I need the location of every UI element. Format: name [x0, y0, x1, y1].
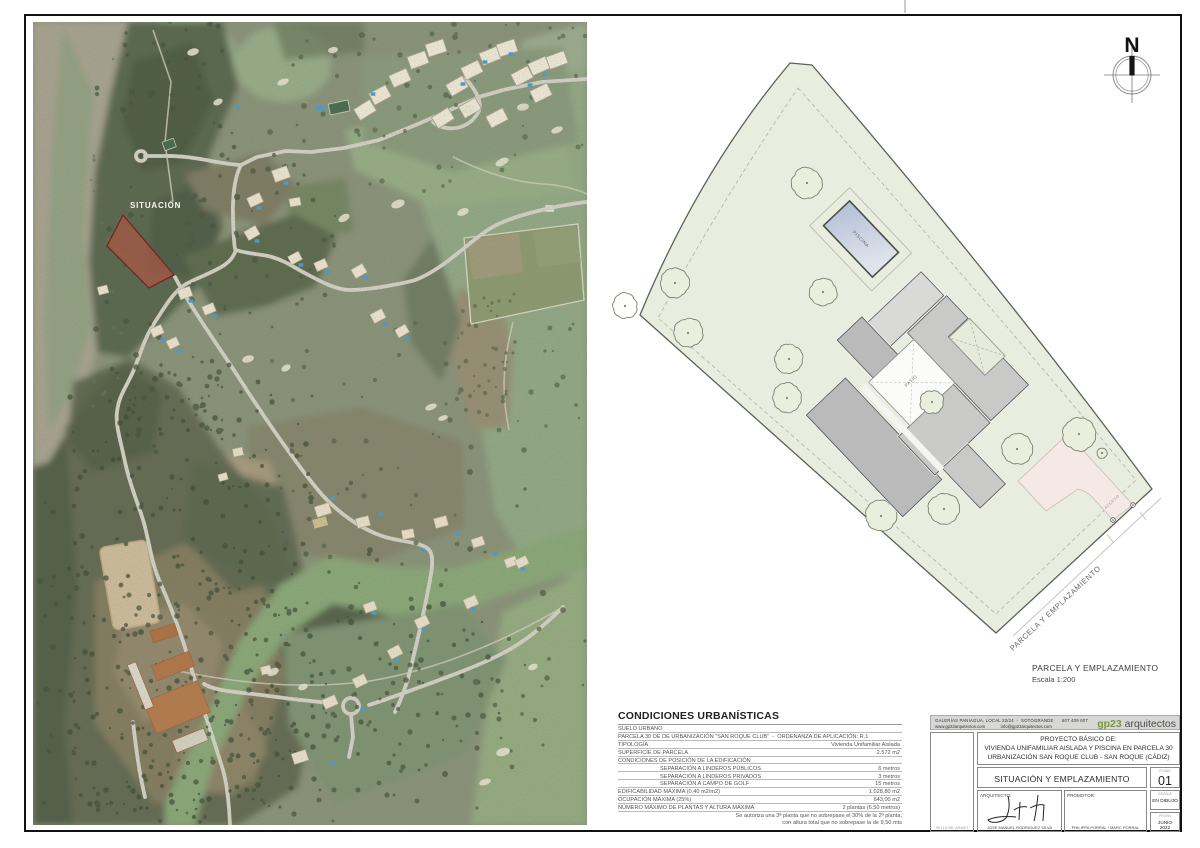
svg-text:PARCELA Y EMPLAZAMIENTO: PARCELA Y EMPLAZAMIENTO [1032, 663, 1159, 673]
svg-text:Escala 1:200: Escala 1:200 [1032, 675, 1075, 684]
svg-text:N: N [1124, 34, 1139, 57]
